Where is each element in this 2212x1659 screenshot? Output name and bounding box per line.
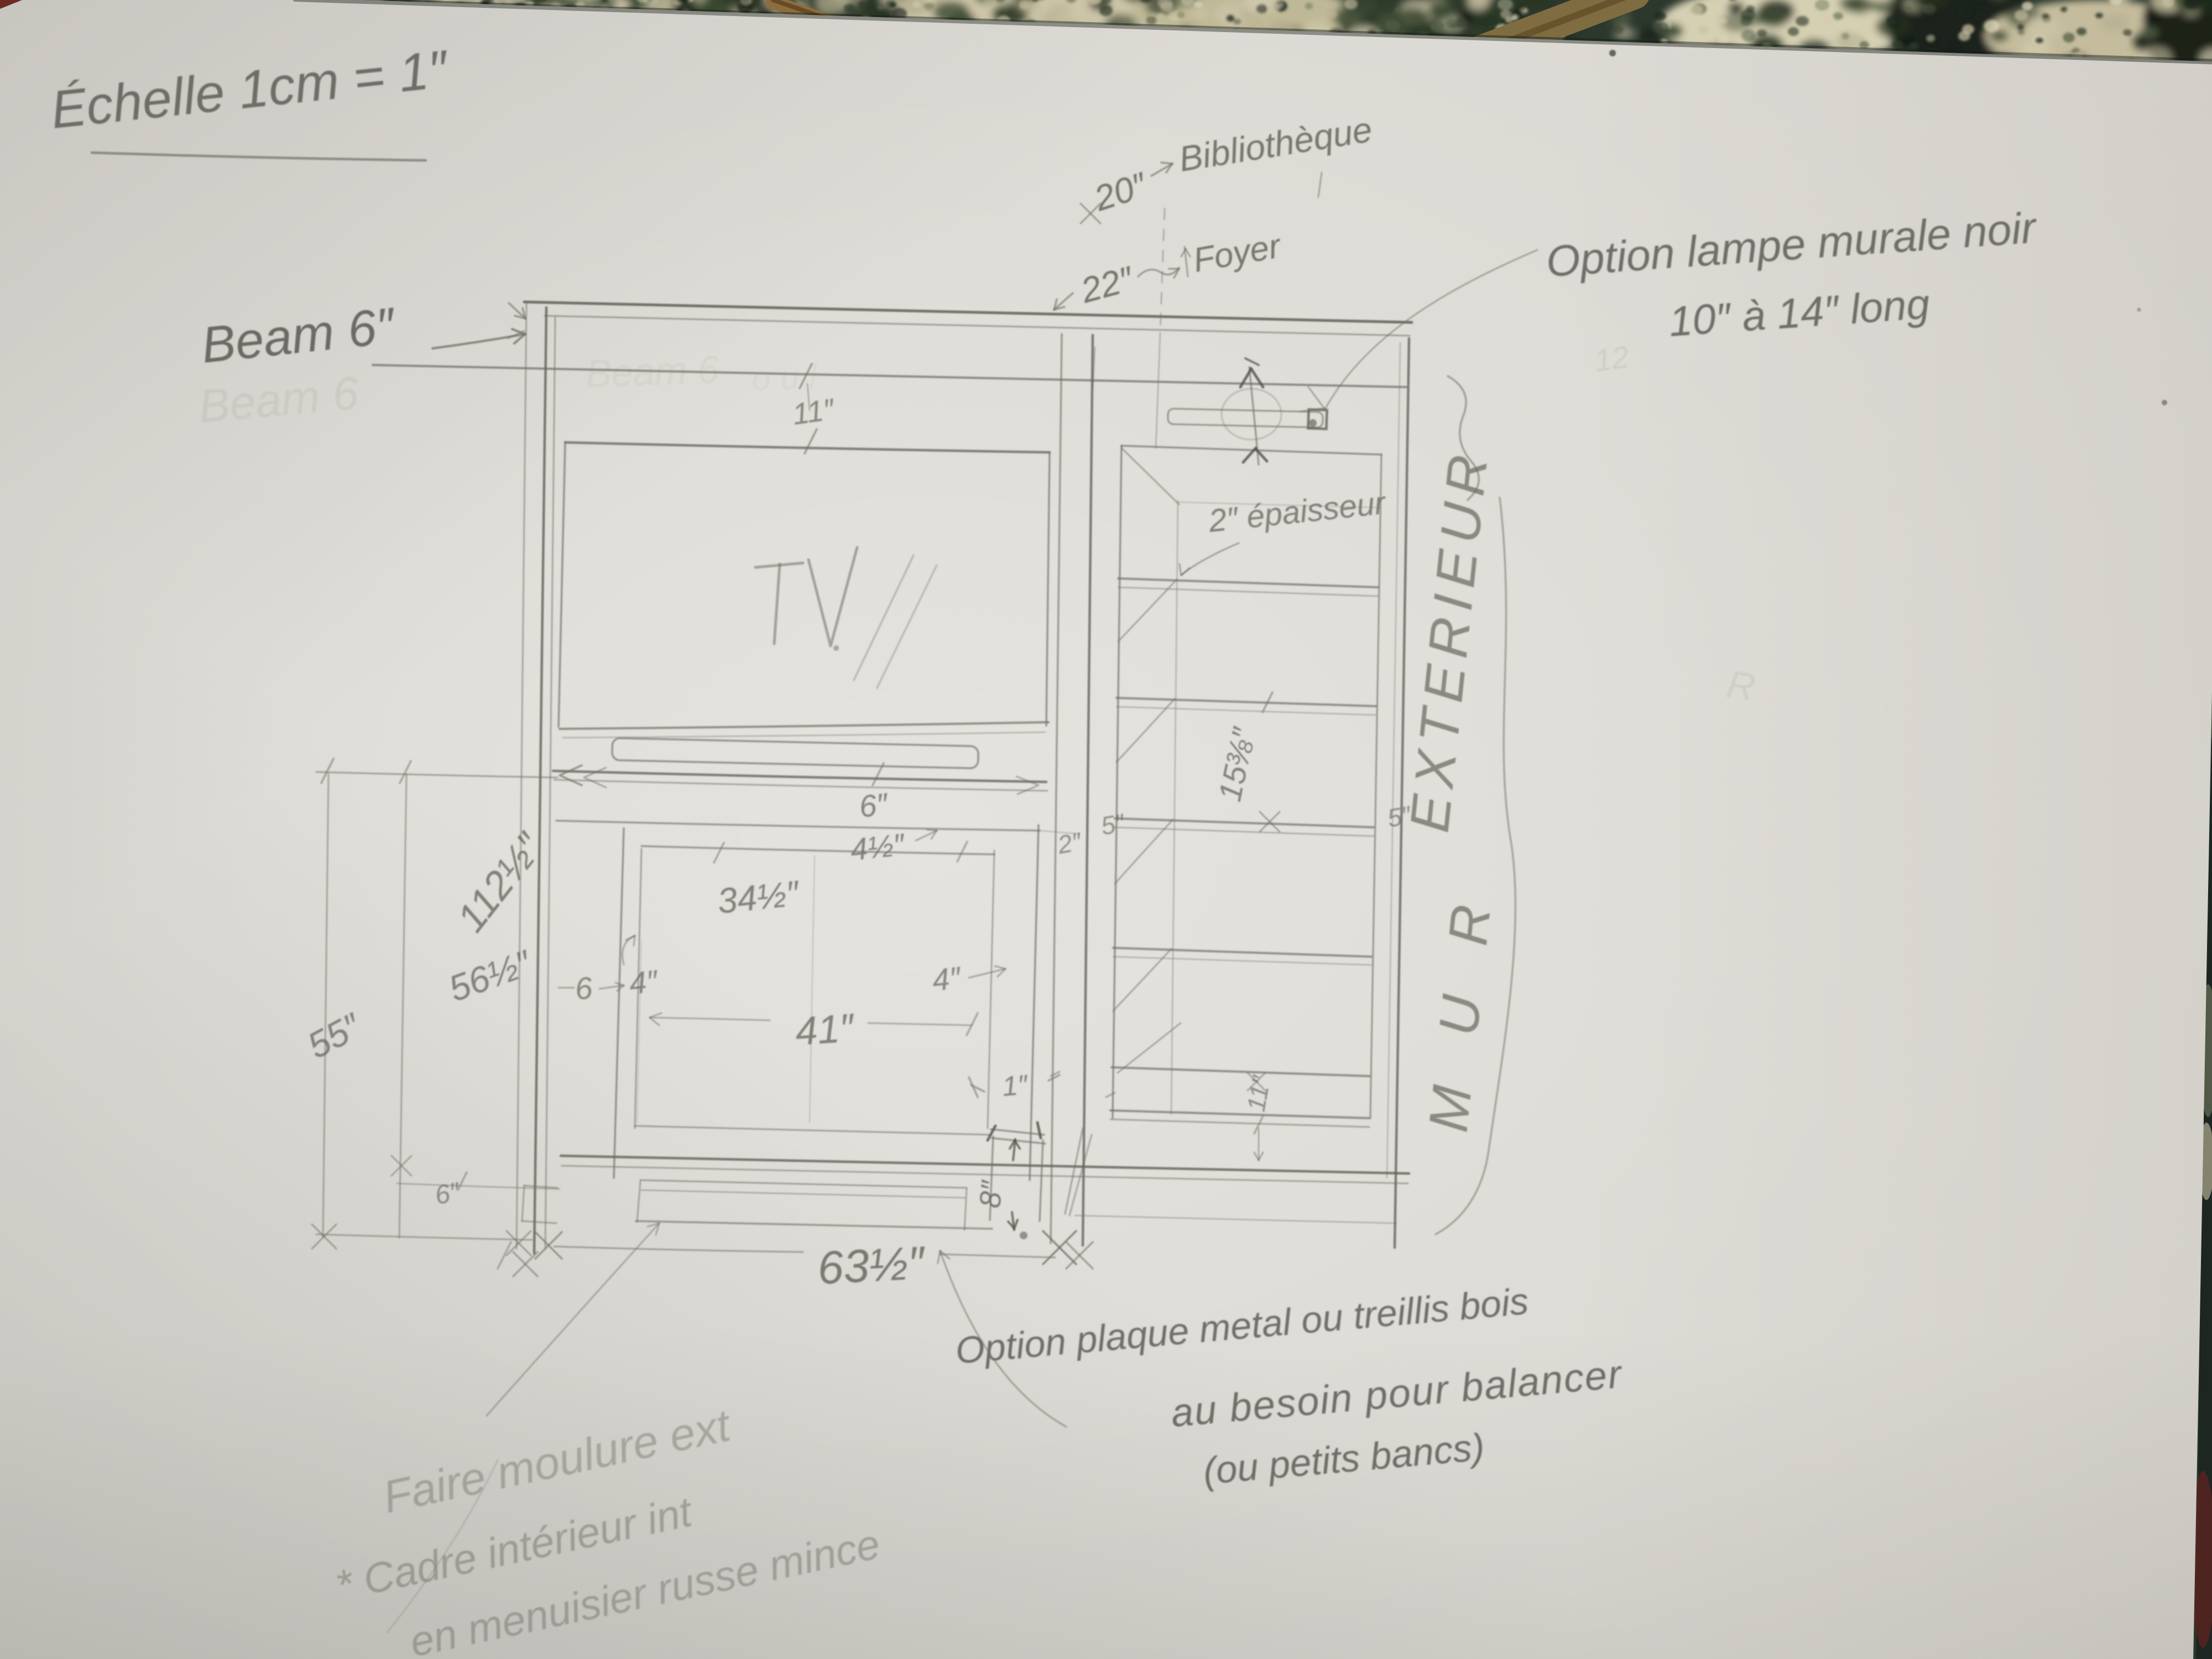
svg-text:8″: 8″ (973, 1178, 1009, 1209)
svg-text:4½″: 4½″ (849, 827, 907, 867)
svg-text:41″: 41″ (794, 1006, 857, 1054)
svg-text:4″: 4″ (628, 963, 660, 1001)
svg-text:R: R (1724, 662, 1758, 709)
svg-text:63½″: 63½″ (816, 1237, 927, 1294)
svg-text:1″: 1″ (1001, 1069, 1030, 1102)
svg-text:12: 12 (1592, 339, 1631, 378)
svg-text:6″: 6″ (858, 786, 890, 824)
svg-text:4″: 4″ (931, 960, 963, 998)
svg-text:11″: 11″ (790, 393, 837, 431)
